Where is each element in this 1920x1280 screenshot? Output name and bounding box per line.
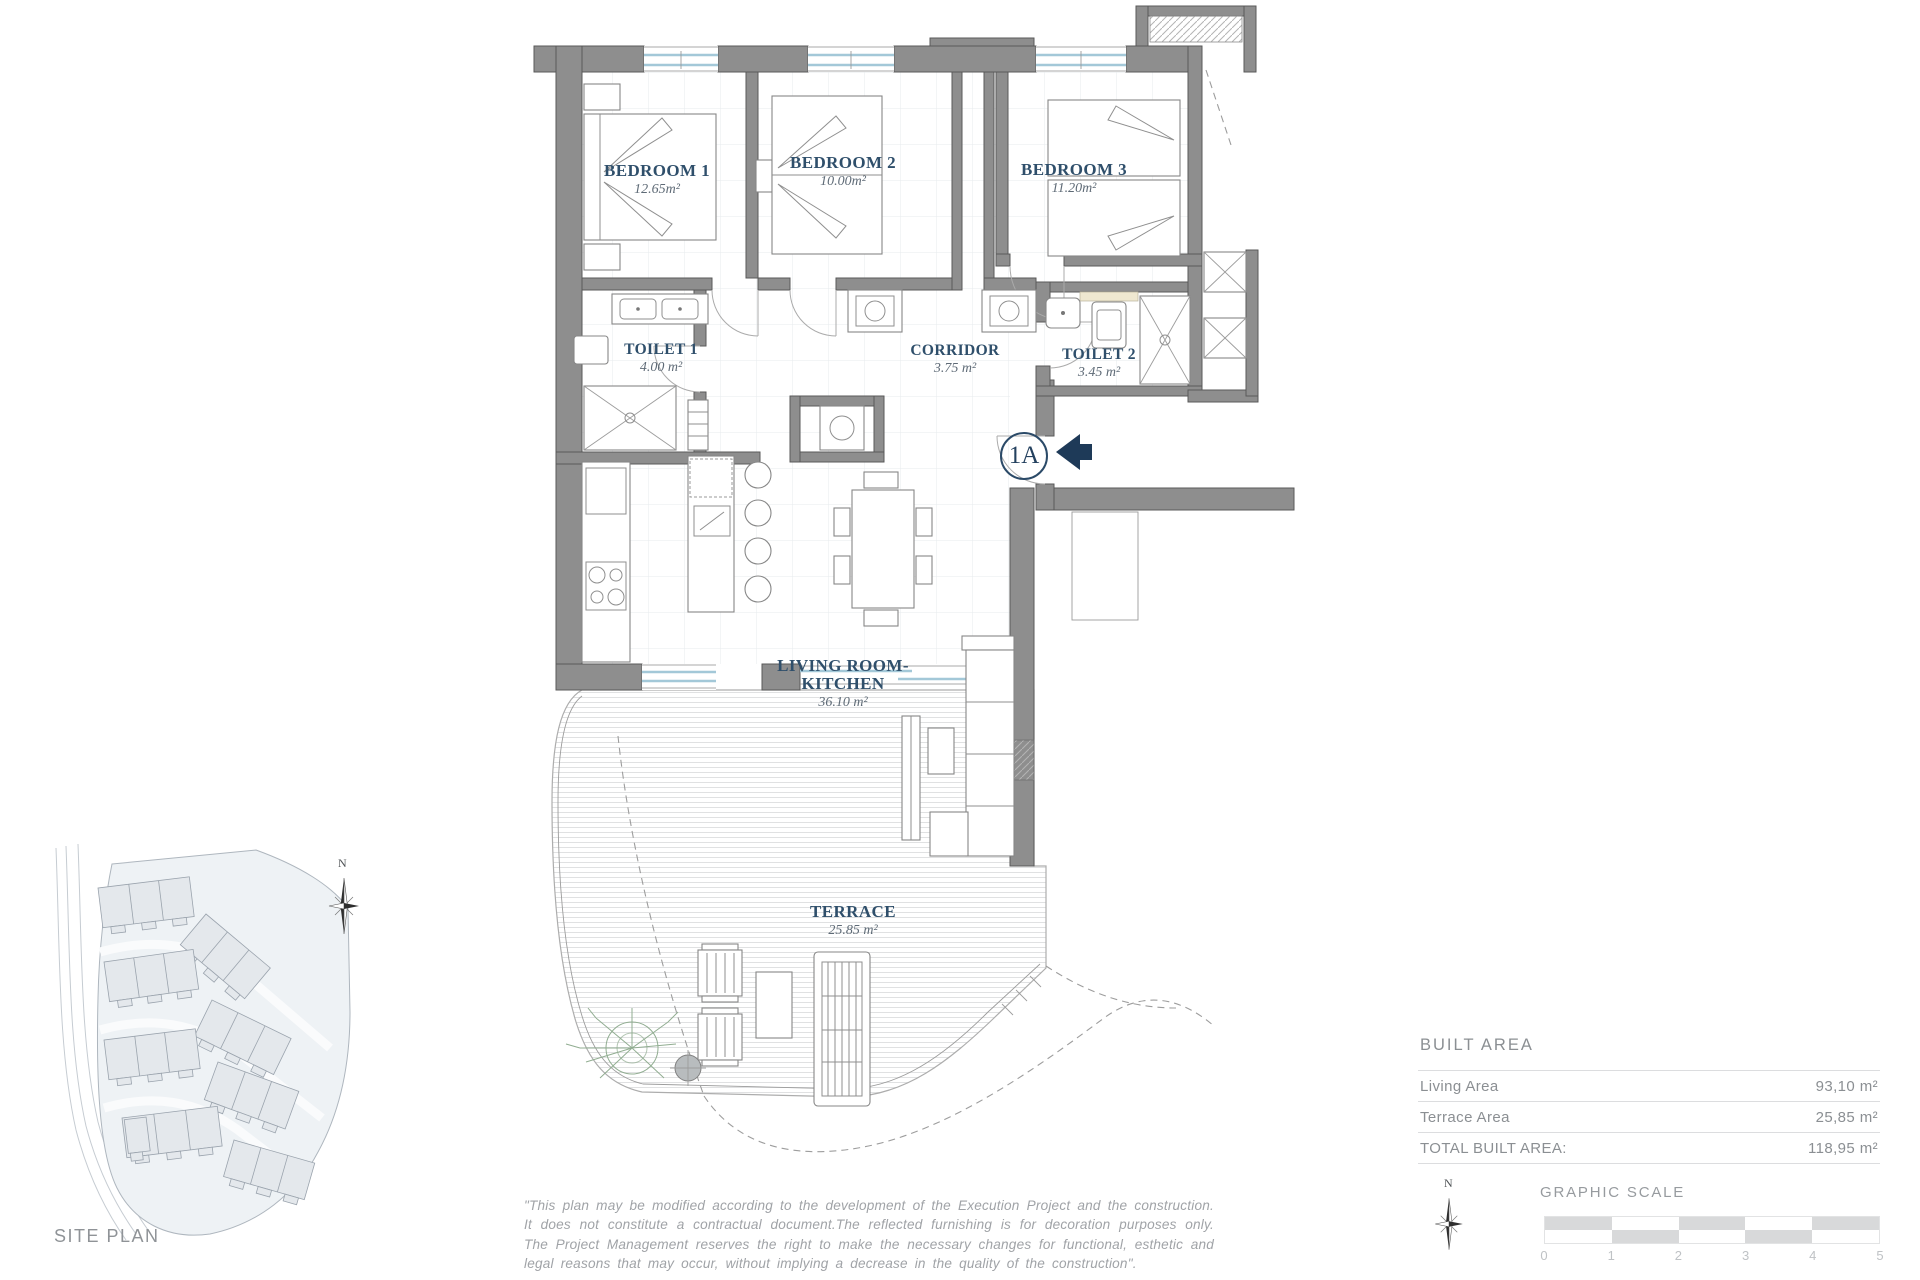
room-name: KITCHEN [777, 675, 909, 693]
room-label-bedroom2: BEDROOM 2 10.00m² [790, 154, 896, 190]
room-label-living: LIVING ROOM- KITCHEN 36.10 m² [777, 657, 909, 711]
room-area: 11.20m² [1021, 181, 1127, 197]
graphic-scale-title: GRAPHIC SCALE [1540, 1184, 1685, 1201]
room-name: LIVING ROOM- [777, 657, 909, 675]
room-label-bedroom1: BEDROOM 1 12.65m² [604, 162, 710, 198]
room-name: TOILET 1 [624, 342, 698, 358]
scale-tick: 0 [1540, 1248, 1547, 1263]
scale-tick: 4 [1809, 1248, 1816, 1263]
room-label-corridor: CORRIDOR 3.75 m² [910, 343, 999, 377]
room-area: 4.00 m² [624, 360, 698, 376]
scale-compass-n-label: N [1444, 1176, 1453, 1191]
row-label: TOTAL BUILT AREA: [1420, 1140, 1567, 1157]
room-label-toilet1: TOILET 1 4.00 m² [624, 342, 698, 376]
room-name: BEDROOM 2 [790, 154, 896, 172]
scale-row-bottom [1545, 1230, 1879, 1243]
table-row: Living Area 93,10 m² [1418, 1070, 1880, 1101]
scale-tick: 3 [1742, 1248, 1749, 1263]
unit-badge-text: 1A [1009, 442, 1040, 470]
room-label-toilet2: TOILET 2 3.45 m² [1062, 347, 1136, 381]
scale-row-top [1545, 1217, 1879, 1230]
room-area: 25.85 m² [810, 923, 896, 939]
room-area: 10.00m² [790, 174, 896, 190]
scale-tick: 2 [1675, 1248, 1682, 1263]
room-name: BEDROOM 3 [1021, 161, 1127, 179]
room-name: TERRACE [810, 903, 896, 921]
table-row: Terrace Area 25,85 m² [1418, 1101, 1880, 1132]
disclaimer-text: "This plan may be modified according to … [524, 1196, 1214, 1273]
room-label-bedroom3: BEDROOM 3 11.20m² [1021, 161, 1127, 197]
room-name: CORRIDOR [910, 343, 999, 359]
unit-badge: 1A [1000, 432, 1048, 480]
row-value: 93,10 m² [1816, 1078, 1878, 1095]
site-compass-n-label: N [338, 856, 347, 871]
room-label-terrace: TERRACE 25.85 m² [810, 903, 896, 939]
site-plan-label: SITE PLAN [54, 1226, 160, 1247]
entrance-arrow-icon [1056, 434, 1092, 470]
highlighted-unit [124, 1117, 150, 1153]
row-label: Living Area [1420, 1078, 1499, 1095]
built-area-panel: BUILT AREA Living Area 93,10 m² Terrace … [1418, 1036, 1880, 1164]
row-label: Terrace Area [1420, 1109, 1510, 1126]
room-area: 3.45 m² [1062, 365, 1136, 381]
room-area: 3.75 m² [910, 361, 999, 377]
scale-tick: 5 [1876, 1248, 1883, 1263]
built-area-title: BUILT AREA [1420, 1036, 1880, 1055]
row-value: 118,95 m² [1808, 1140, 1878, 1157]
room-name: TOILET 2 [1062, 347, 1136, 363]
table-row: TOTAL BUILT AREA: 118,95 m² [1418, 1132, 1880, 1164]
graphic-scale-bar [1544, 1216, 1880, 1244]
graphic-scale-ticks: 0 1 2 3 4 5 [1544, 1248, 1880, 1264]
site-plan-drawing [56, 844, 350, 1240]
row-value: 25,85 m² [1816, 1109, 1878, 1126]
room-name: BEDROOM 1 [604, 162, 710, 180]
floor-plan-page: BEDROOM 1 12.65m² BEDROOM 2 10.00m² BEDR… [0, 0, 1920, 1280]
scale-compass-icon [1435, 1198, 1463, 1250]
room-area: 12.65m² [604, 182, 710, 198]
built-area-table: Living Area 93,10 m² Terrace Area 25,85 … [1418, 1070, 1880, 1164]
scale-tick: 1 [1608, 1248, 1615, 1263]
room-area: 36.10 m² [777, 695, 909, 711]
